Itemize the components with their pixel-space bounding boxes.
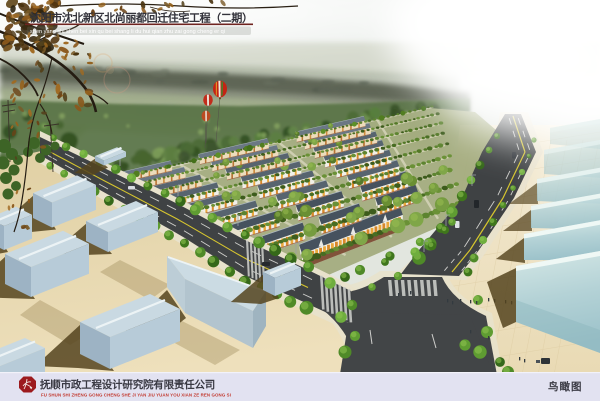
svg-text:shen yang shi shen bei xin qu: shen yang shi shen bei xin qu bei shang … xyxy=(30,29,225,35)
svg-text:FU SHUN SHI ZHENG GONG CHENG S: FU SHUN SHI ZHENG GONG CHENG SHE JI YAN … xyxy=(41,393,231,398)
svg-text:沈阳市沈北新区北尚丽都回迁住宅工程（二期）: 沈阳市沈北新区北尚丽都回迁住宅工程（二期） xyxy=(30,11,253,25)
svg-text:鸟瞰图: 鸟瞰图 xyxy=(548,380,583,393)
svg-text:抚顺市政工程设计研究院有限责任公司: 抚顺市政工程设计研究院有限责任公司 xyxy=(40,378,215,391)
